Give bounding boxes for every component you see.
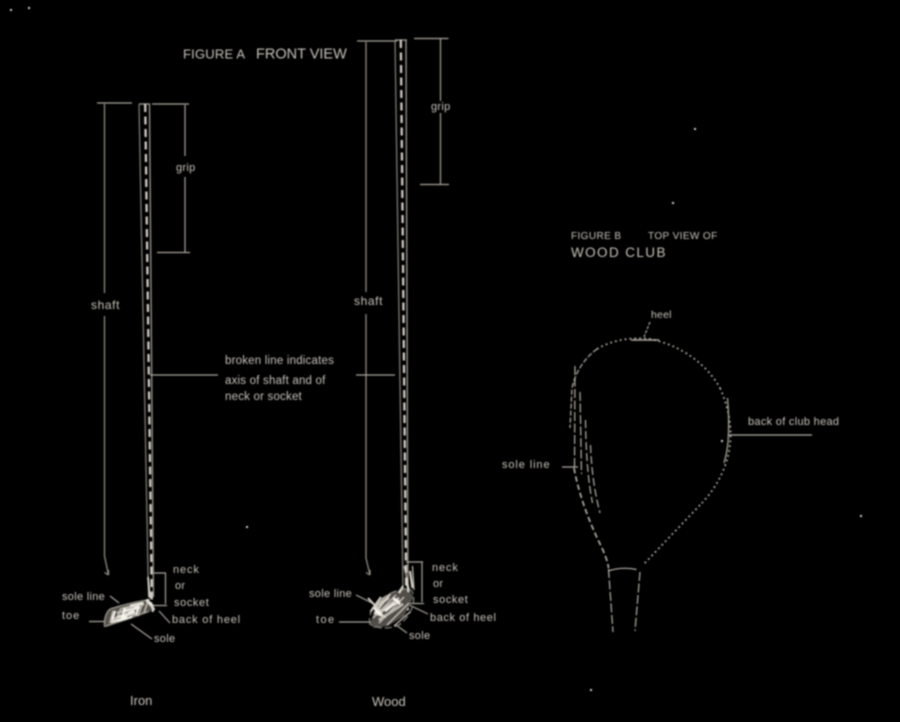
svg-text:back of heel: back of heel — [430, 612, 497, 624]
svg-text:axis of shaft and of: axis of shaft and of — [225, 375, 326, 387]
svg-text:sole line: sole line — [502, 459, 550, 471]
svg-text:sole: sole — [154, 633, 175, 645]
svg-text:back of heel: back of heel — [172, 614, 241, 626]
svg-text:toe: toe — [316, 614, 336, 626]
svg-text:toe: toe — [62, 610, 80, 622]
svg-text:socket: socket — [433, 594, 468, 606]
svg-text:WOOD CLUB: WOOD CLUB — [571, 245, 667, 260]
svg-text:or: or — [175, 580, 185, 592]
svg-text:sole line: sole line — [62, 591, 105, 603]
svg-text:neck: neck — [173, 564, 200, 576]
svg-text:neck or socket: neck or socket — [225, 391, 303, 403]
svg-text:neck: neck — [432, 562, 459, 574]
svg-text:TOP VIEW OF: TOP VIEW OF — [648, 231, 718, 242]
svg-text:sole: sole — [409, 630, 430, 642]
svg-text:socket: socket — [174, 597, 209, 609]
svg-text:heel: heel — [651, 309, 672, 321]
svg-text:Iron: Iron — [130, 693, 152, 708]
svg-text:or: or — [433, 578, 443, 590]
svg-text:grip: grip — [176, 162, 196, 174]
svg-text:FIGURE B: FIGURE B — [571, 231, 621, 242]
svg-text:Wood: Wood — [372, 694, 406, 709]
svg-text:back of club head: back of club head — [748, 416, 839, 428]
svg-text:shaft: shaft — [91, 298, 120, 312]
svg-text:grip: grip — [431, 101, 451, 113]
svg-text:broken line indicates: broken line indicates — [225, 355, 334, 367]
svg-text:FIGURE A: FIGURE A — [183, 47, 245, 62]
svg-text:sole line: sole line — [309, 588, 352, 600]
svg-text:FRONT VIEW: FRONT VIEW — [256, 47, 347, 63]
svg-text:shaft: shaft — [354, 294, 383, 308]
